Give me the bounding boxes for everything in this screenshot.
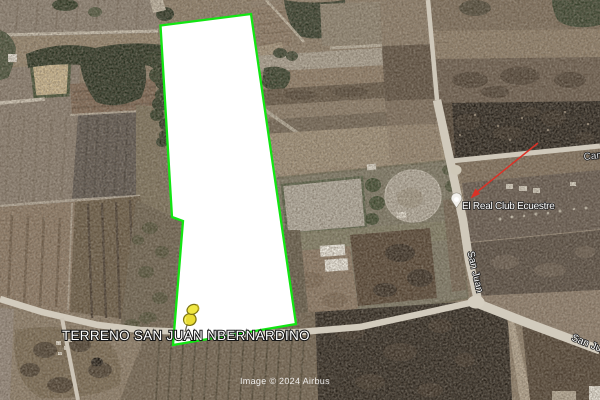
- svg-text:El Real Club Ecuestre: El Real Club Ecuestre: [462, 201, 555, 212]
- svg-text:Image © 2024 Airbus: Image © 2024 Airbus: [240, 376, 330, 386]
- svg-text:TERRENO SAN JUAN NBERNARDINO: TERRENO SAN JUAN NBERNARDINO: [62, 328, 310, 343]
